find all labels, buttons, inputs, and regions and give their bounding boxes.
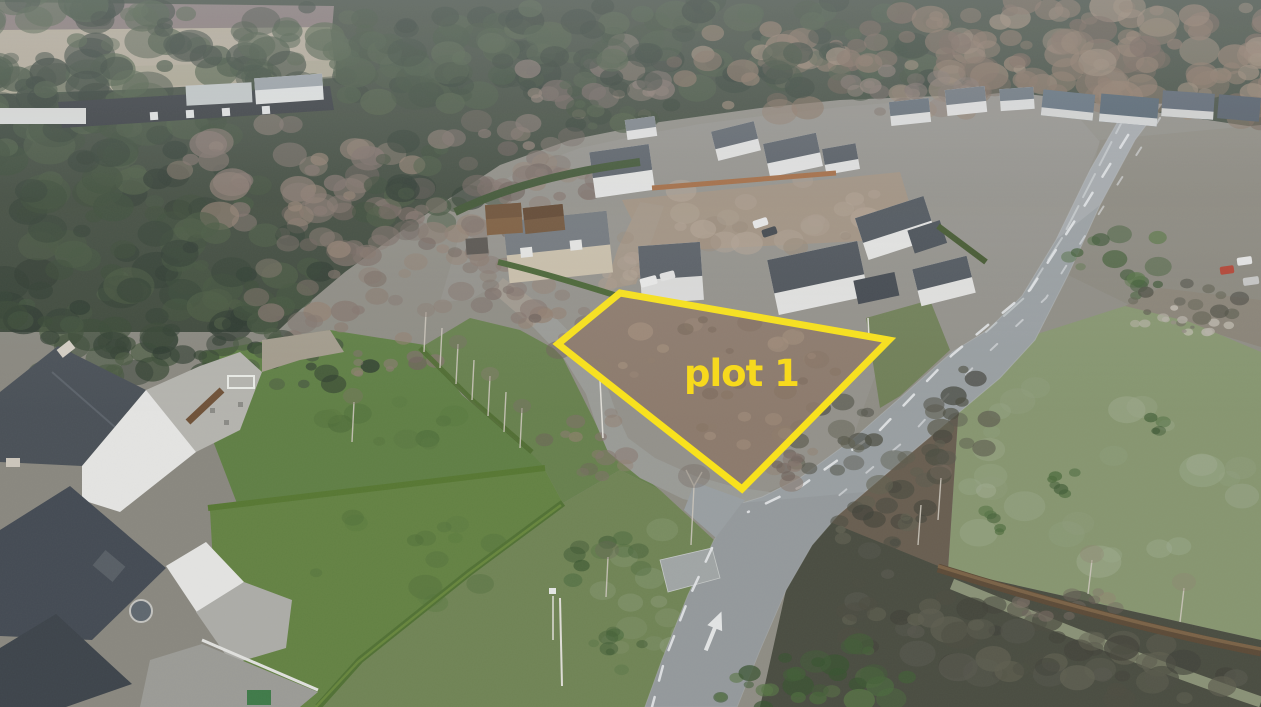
atmosphere-overlays — [0, 0, 1261, 707]
aerial-photo: plot 1 — [0, 0, 1261, 707]
